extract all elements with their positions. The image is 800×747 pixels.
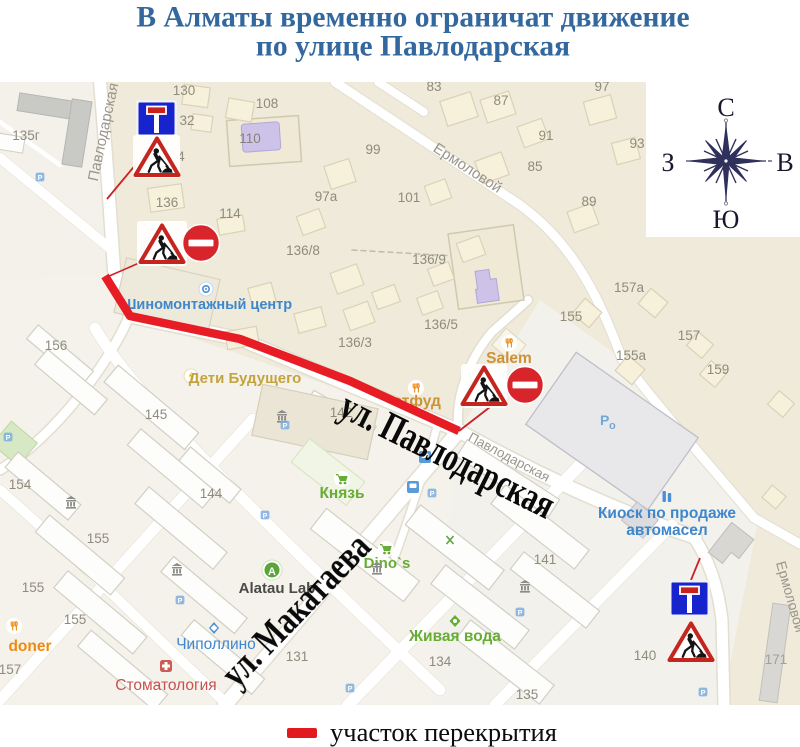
- svg-text:С: С: [717, 93, 734, 122]
- svg-text:93: 93: [629, 136, 644, 151]
- svg-text:89: 89: [581, 194, 596, 209]
- svg-text:В: В: [776, 148, 793, 177]
- svg-text:130: 130: [173, 83, 196, 98]
- svg-text:по улице Павлодарская: по улице Павлодарская: [256, 31, 570, 63]
- svg-text:154: 154: [9, 477, 32, 492]
- svg-text:157: 157: [0, 662, 21, 677]
- svg-text:136/3: 136/3: [338, 335, 372, 350]
- svg-text:156: 156: [45, 338, 68, 353]
- svg-text:Стоматология: Стоматология: [115, 677, 216, 694]
- svg-text:Ю: Ю: [713, 205, 740, 234]
- svg-text:87: 87: [493, 93, 508, 108]
- svg-text:101: 101: [398, 190, 421, 205]
- svg-text:108: 108: [256, 96, 279, 111]
- svg-text:Киоск по продаже: Киоск по продаже: [598, 505, 736, 522]
- svg-text:Шиномонтажный центр: Шиномонтажный центр: [122, 297, 292, 313]
- svg-text:131: 131: [286, 649, 309, 664]
- svg-text:144: 144: [200, 486, 223, 501]
- svg-text:155а: 155а: [616, 348, 647, 363]
- svg-text:114: 114: [219, 206, 241, 221]
- svg-text:o: o: [609, 420, 616, 432]
- svg-text:134: 134: [429, 654, 452, 669]
- svg-text:145: 145: [145, 407, 168, 422]
- svg-text:З: З: [661, 148, 674, 177]
- svg-text:85: 85: [527, 159, 542, 174]
- svg-text:140: 140: [634, 648, 657, 663]
- svg-text:Живая вода: Живая вода: [408, 628, 501, 645]
- svg-text:Князь: Князь: [319, 485, 364, 502]
- svg-text:155: 155: [560, 309, 583, 324]
- svg-text:99: 99: [365, 142, 380, 157]
- svg-text:141: 141: [534, 552, 557, 567]
- svg-text:A: A: [268, 566, 276, 578]
- svg-text:155: 155: [64, 612, 87, 627]
- svg-text:135: 135: [516, 687, 539, 702]
- svg-text:155: 155: [87, 531, 110, 546]
- svg-text:32: 32: [179, 113, 194, 128]
- svg-text:110: 110: [239, 131, 261, 146]
- svg-text:157: 157: [678, 328, 701, 343]
- svg-text:97а: 97а: [315, 189, 338, 204]
- svg-text:136/5: 136/5: [424, 317, 458, 332]
- svg-text:автомасел: автомасел: [626, 522, 708, 539]
- svg-text:136/9: 136/9: [412, 252, 446, 267]
- svg-text:doner: doner: [8, 638, 51, 655]
- svg-text:В Алматы временно ограничат дв: В Алматы временно ограничат движение: [136, 2, 689, 34]
- svg-text:159: 159: [707, 362, 730, 377]
- svg-text:136: 136: [156, 195, 179, 210]
- svg-text:171: 171: [765, 652, 788, 667]
- svg-text:участок перекрытия: участок перекрытия: [330, 717, 557, 747]
- svg-text:91: 91: [538, 128, 553, 143]
- svg-text:P: P: [600, 412, 609, 428]
- svg-text:136/8: 136/8: [286, 243, 320, 258]
- svg-text:Дети Будущего: Дети Будущего: [189, 370, 302, 387]
- svg-text:135г: 135г: [12, 128, 40, 143]
- svg-text:157а: 157а: [614, 280, 645, 295]
- svg-text:155: 155: [22, 580, 45, 595]
